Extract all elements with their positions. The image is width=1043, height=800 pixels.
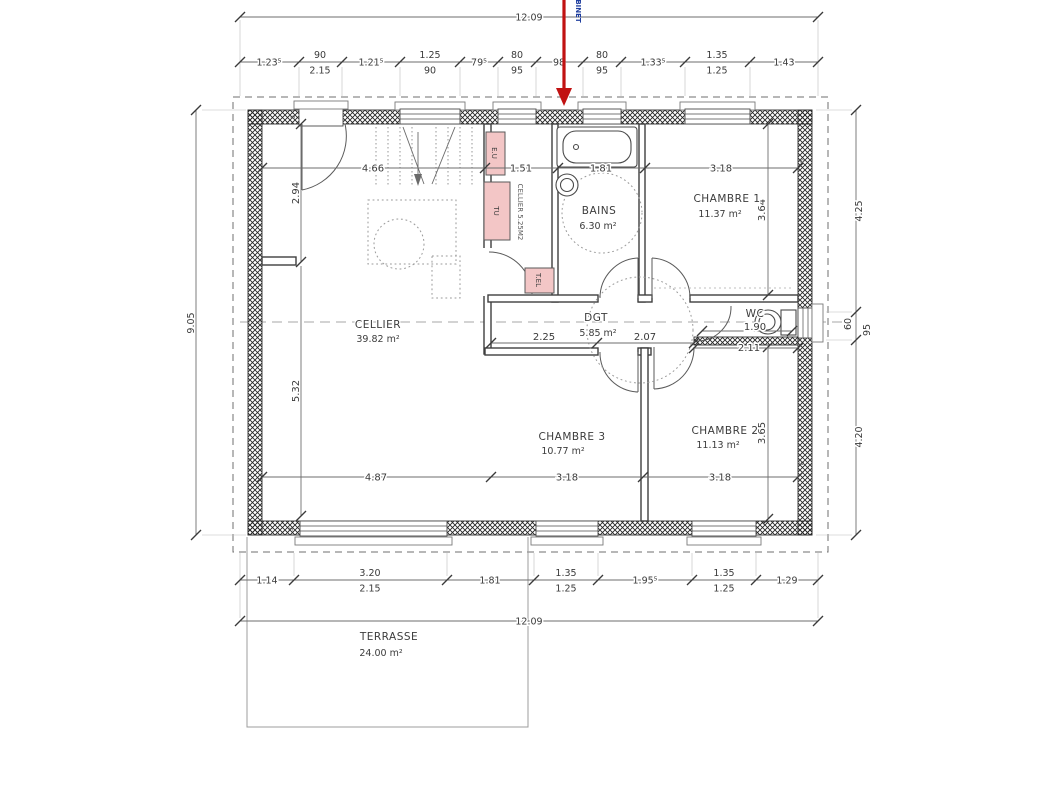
- dim-top-1b: 2.15: [309, 66, 330, 77]
- dim-top-9b: 1.25: [706, 66, 727, 77]
- annotation-label: ROBINET: [574, 0, 582, 23]
- dim-int-top-1: 1.51: [510, 164, 532, 175]
- dim-int-top-0: 4.66: [362, 164, 384, 175]
- dim-right-2: 4.20: [854, 426, 865, 447]
- window-top-2: [493, 102, 541, 124]
- dim-dgt-1: 2.07: [634, 332, 656, 343]
- tu-label: TU: [492, 205, 500, 215]
- dim-top-2: 1.21⁵: [359, 58, 384, 69]
- dim-top-9a: 1.35: [706, 50, 727, 61]
- dim-overall-left: 9.05: [186, 312, 197, 333]
- dim-bot-6: 1.29: [776, 576, 797, 587]
- dim-int-top-3: 3.18: [710, 164, 732, 175]
- dim-top-7b: 95: [596, 66, 608, 77]
- wall-chambre3-top: [485, 348, 598, 355]
- wall-left: [248, 110, 262, 535]
- interior-walls: [262, 124, 798, 521]
- entry-sill: [294, 101, 348, 109]
- round-table-dotted: [374, 219, 424, 269]
- wall-mark-4: 6: [798, 461, 806, 465]
- label-wc: WC: [746, 308, 765, 320]
- label-cellier: CELLIER: [355, 319, 401, 331]
- stair-arrow-head: [414, 174, 422, 186]
- label-terrasse: TERRASSE: [359, 631, 418, 643]
- dim-top-1a: 90: [314, 50, 326, 61]
- bathtub-drain: [574, 145, 579, 150]
- dim-int-bot-0: 4.87: [365, 473, 387, 484]
- wall-stub-left: [262, 257, 296, 265]
- dim-vert-0: 2.94: [291, 182, 302, 204]
- wall-mid-3: [690, 295, 798, 302]
- area-chambre3: 10.77 m²: [541, 446, 584, 457]
- wall-divider-ch2-ch3: [641, 348, 648, 521]
- window-chambre1: [680, 102, 755, 124]
- dim-top: 12.09 1.23⁵ 90 2.15 1.21⁵ 1.25 90 79⁵ 80…: [235, 12, 823, 96]
- dim-right-1b: 95: [862, 324, 873, 336]
- dim-bot-4: 1.95⁵: [633, 576, 658, 587]
- washbasin: [556, 174, 578, 196]
- dim-top-3b: 90: [424, 66, 436, 77]
- wall-mid-2: [638, 295, 652, 302]
- label-dgt: DGT: [584, 312, 608, 324]
- dim-bot-1a: 3.20: [359, 568, 380, 579]
- dim-bot-5a: 1.35: [713, 568, 734, 579]
- window-wc: [798, 304, 823, 342]
- window-chambre2: [687, 521, 761, 545]
- wall-mark-0: 6: [289, 115, 297, 119]
- dim-bot-1b: 2.15: [359, 584, 380, 595]
- window-stairs: [395, 102, 465, 124]
- area-chambre2: 11.13 m²: [696, 440, 739, 451]
- eu-label: E.U: [490, 147, 498, 159]
- bains-door-swing: [600, 258, 638, 298]
- window-bains: [578, 102, 626, 124]
- wall-marks: 6 3 3 6 6 3: [248, 115, 806, 531]
- sliding-door-terrace: [295, 521, 452, 545]
- area-chambre1: 11.37 m²: [698, 209, 741, 220]
- label-bains: BAINS: [582, 205, 617, 217]
- wall-mark-3: 6: [798, 159, 806, 163]
- window-chambre3: [531, 521, 603, 545]
- dim-overall-top: 12.09: [515, 13, 542, 24]
- wall-mark-5: 3: [287, 527, 295, 531]
- area-bains: 6.30 m²: [579, 221, 616, 232]
- floor-plan-page: E.U TU T.EL 12.09 1.23⁵: [0, 0, 1043, 800]
- dim-wc-0: 1.90: [744, 322, 766, 333]
- dim-top-8: 1.33⁵: [641, 58, 666, 69]
- staircase: [376, 127, 472, 186]
- dim-int-top-2: 1.81: [590, 164, 612, 175]
- dim-vert-1: 5.32: [291, 380, 302, 402]
- dim-dgt-0: 2.25: [533, 332, 555, 343]
- floor-plan-drawing: E.U TU T.EL 12.09 1.23⁵: [0, 0, 1043, 800]
- dim-interior: 4.66 1.51 1.81 3.18 4.87 3.18 3.18 2.94 …: [257, 119, 803, 524]
- dim-bot-3b: 1.25: [555, 584, 576, 595]
- chambre3-door-swing: [600, 352, 638, 392]
- closet-door-opening: [483, 248, 492, 296]
- bathtub: [557, 127, 637, 167]
- area-cellier: 39.82 m²: [356, 334, 399, 345]
- tel-label: T.EL: [534, 272, 542, 287]
- dim-top-7a: 80: [596, 50, 608, 61]
- dim-top-0: 1.23⁵: [257, 58, 282, 69]
- entry-door-swing: [302, 124, 346, 190]
- dim-bottom: 1.14 3.20 2.15 1.81 1.35 1.25 1.95⁵ 1.35…: [235, 553, 823, 628]
- wall-mark-2: 3: [248, 457, 256, 461]
- wall-mid-1: [488, 295, 598, 302]
- wc-door-swing: [697, 306, 731, 341]
- cellier-furniture: [368, 200, 460, 298]
- dim-int-bot-1: 3.18: [556, 473, 578, 484]
- dim-overall-bottom: 12.09: [515, 617, 542, 628]
- area-terrasse: 24.00 m²: [359, 648, 402, 659]
- chair-dotted: [432, 256, 460, 298]
- chambre1-door-swing: [652, 258, 690, 298]
- dim-top-4: 79⁵: [471, 58, 487, 69]
- dim-right-1a: 60: [843, 318, 854, 330]
- entry-opening: [299, 107, 343, 126]
- dim-int-bot-2: 3.18: [709, 473, 731, 484]
- label-closet: CELLIER 5.25M2: [516, 184, 524, 241]
- label-chambre2: CHAMBRE 2: [691, 425, 758, 437]
- dim-top-5b: 95: [511, 66, 523, 77]
- dim-bot-2: 1.81: [479, 576, 500, 587]
- dim-right: 4.25 60 95 4.20: [816, 105, 873, 540]
- table-dotted: [368, 200, 456, 264]
- dim-bot-5b: 1.25: [713, 584, 734, 595]
- dim-top-5a: 80: [511, 50, 523, 61]
- wall-mark-1: 3: [248, 152, 256, 156]
- area-dgt: 5.85 m²: [579, 328, 616, 339]
- dim-right-0: 4.25: [854, 200, 865, 221]
- label-chambre3: CHAMBRE 3: [538, 431, 605, 443]
- dim-vert-3: 3.65: [757, 422, 768, 444]
- annotation-arrow: ROBINET: [556, 0, 582, 106]
- dim-bot-3a: 1.35: [555, 568, 576, 579]
- dim-bot-0: 1.14: [256, 576, 277, 587]
- dim-left: 9.05: [186, 105, 246, 540]
- dim-wc-1: 2.11: [738, 343, 760, 354]
- label-chambre1: CHAMBRE 1: [693, 193, 760, 205]
- dim-top-10: 1.43: [773, 58, 794, 69]
- dim-top-3a: 1.25: [419, 50, 440, 61]
